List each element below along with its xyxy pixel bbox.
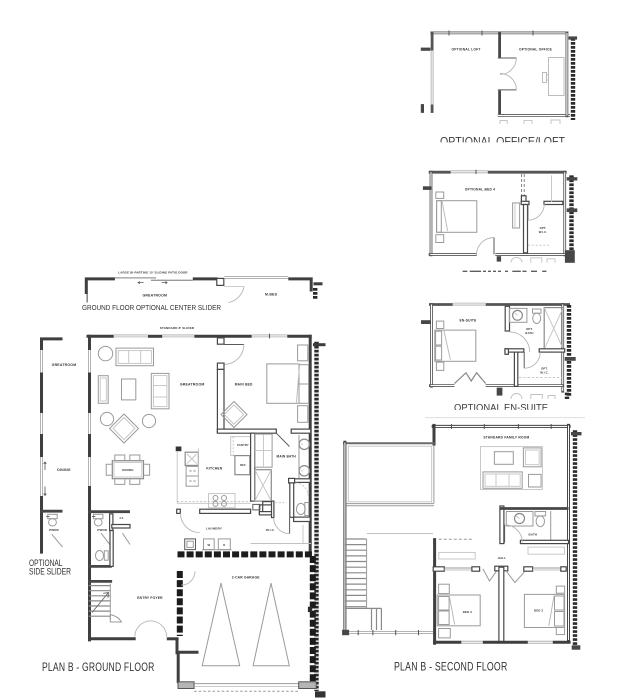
svg-text:OPTIONAL OFFICE: OPTIONAL OFFICE (519, 48, 553, 52)
svg-text:M.BED: M.BED (265, 293, 278, 297)
svg-text:PWDR: PWDR (49, 528, 59, 532)
svg-text:DINING: DINING (122, 468, 134, 472)
svg-text:W.I.C.: W.I.C. (266, 528, 275, 532)
svg-text:BED 3: BED 3 (463, 610, 473, 614)
svg-text:STANDARD 8' SLIDER: STANDARD 8' SLIDER (160, 326, 195, 330)
svg-text:W.I.C.: W.I.C. (539, 230, 548, 234)
svg-text:SIDE SLIDER: SIDE SLIDER (29, 566, 71, 576)
svg-text:OPTIONAL BED 4: OPTIONAL BED 4 (465, 187, 495, 191)
svg-text:OPTIONAL LOFT: OPTIONAL LOFT (451, 48, 480, 52)
svg-text:PLAN B - GROUND FLOOR: PLAN B - GROUND FLOOR (42, 660, 155, 674)
svg-text:BED 2: BED 2 (534, 609, 544, 613)
svg-text:D: D (223, 543, 225, 547)
svg-text:PANTRY: PANTRY (237, 443, 249, 447)
svg-text:REF: REF (240, 463, 246, 467)
svg-text:W: W (208, 543, 211, 547)
svg-text:GROUND FLOOR OPTIONAL CENTER S: GROUND FLOOR OPTIONAL CENTER SLIDER (82, 303, 221, 312)
svg-text:ENTRY FOYER: ENTRY FOYER (137, 596, 163, 600)
svg-text:BATH: BATH (525, 331, 533, 335)
svg-text:LAUNDRY: LAUNDRY (206, 527, 223, 531)
svg-text:DINING: DINING (57, 468, 71, 472)
svg-text:OPTIONAL OFFICE/LOFT: OPTIONAL OFFICE/LOFT (440, 134, 566, 148)
svg-text:GREATROOM: GREATROOM (180, 382, 205, 386)
svg-text:GREATROOM: GREATROOM (52, 363, 77, 367)
svg-text:MAIN BED: MAIN BED (235, 382, 253, 386)
svg-text:KITCHEN: KITCHEN (206, 467, 222, 471)
svg-text:MAIN BATH: MAIN BATH (276, 455, 296, 459)
svg-text:STANDARD FAMILY ROOM: STANDARD FAMILY ROOM (483, 435, 529, 439)
svg-text:PLAN B - SECOND FLOOR: PLAN B - SECOND FLOOR (394, 659, 508, 673)
svg-text:BATH: BATH (529, 533, 538, 537)
svg-text:W.I.C.: W.I.C. (540, 370, 549, 374)
svg-text:HALL: HALL (498, 556, 507, 560)
svg-text:GREATROOM: GREATROOM (142, 294, 167, 298)
svg-text:OPTIONAL EN-SUITE: OPTIONAL EN-SUITE (454, 403, 548, 414)
svg-text:CL: CL (120, 516, 124, 520)
svg-text:PWDR: PWDR (97, 528, 107, 532)
svg-text:LARGE BI-PARTING 15' SLIDING P: LARGE BI-PARTING 15' SLIDING PATIO DOOR (118, 270, 188, 274)
svg-text:2-CAR GARAGE: 2-CAR GARAGE (232, 576, 260, 580)
svg-text:EN-SUITE: EN-SUITE (460, 318, 478, 322)
